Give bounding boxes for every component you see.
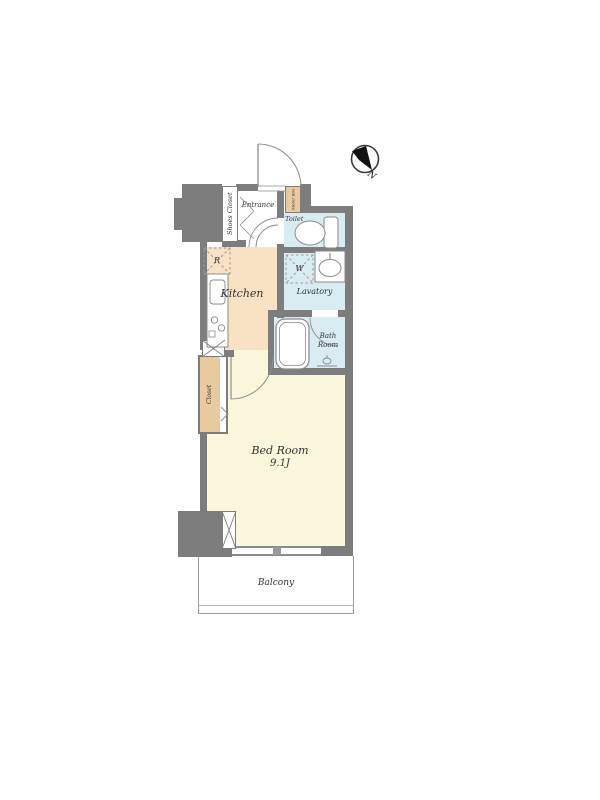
hall-toilet-wall-upper: [277, 191, 284, 218]
entrance-label: Entrance: [238, 199, 278, 211]
pipe-shaft-lower: [222, 511, 236, 549]
pillar-top-left-bump: [174, 198, 182, 230]
lavatory-label: Lavatory: [284, 286, 345, 298]
refrigerator-mark-label: R: [204, 254, 230, 268]
compass-icon: N: [352, 146, 379, 183]
kitchen-wet-divider-wall: [277, 244, 284, 318]
floorplan-canvas: Shoes Closet Meter Box Closet: [0, 0, 600, 800]
toilet-door-opening: [277, 218, 284, 244]
bedroom-bottom-wall-right: [321, 546, 353, 556]
bedroom-label-size: 9.1J: [270, 458, 290, 471]
bedroom-label: Bed Room 9.1J: [225, 441, 335, 473]
balcony-label: Balcony: [198, 578, 354, 590]
balcony-edge-line: [198, 605, 354, 606]
bathroom-label: Bath Room: [310, 331, 346, 351]
lavatory-bath-divider: [268, 310, 312, 317]
bathroom-label-line1: Bath: [320, 332, 337, 341]
right-wall: [345, 206, 353, 556]
bath-bottom-wall: [268, 368, 352, 375]
meter-box: Meter Box: [285, 186, 301, 213]
top-wall-left: [236, 184, 258, 191]
bathroom-label-line2: Room: [318, 341, 338, 350]
top-wall-right-corner: [300, 184, 311, 213]
pillar-top-left: [182, 184, 222, 242]
lavatory-bath-divider-stub: [338, 310, 346, 317]
compass-north-label: N: [364, 169, 378, 183]
bath-left-wall: [268, 310, 274, 375]
closet-door-strip: [220, 357, 226, 432]
toilet-lavatory-divider: [284, 247, 346, 253]
closet-label: Closet: [199, 358, 220, 431]
pipe-shaft-upper: [202, 340, 225, 357]
washing-machine-mark-label: W: [286, 262, 313, 276]
bedroom-label-name: Bed Room: [251, 444, 308, 458]
window-center-mullion: [273, 547, 281, 555]
kitchen-label: Kitchen: [207, 287, 277, 301]
meter-box-label: Meter Box: [286, 187, 300, 212]
shoes-closet-label: Shoes Closet: [223, 187, 237, 241]
bedroom-left-wall: [200, 434, 207, 512]
toilet-label: Toilet: [285, 214, 313, 224]
entrance-door-icon: [258, 144, 301, 191]
shoes-closet-box: Shoes Closet: [222, 186, 238, 242]
